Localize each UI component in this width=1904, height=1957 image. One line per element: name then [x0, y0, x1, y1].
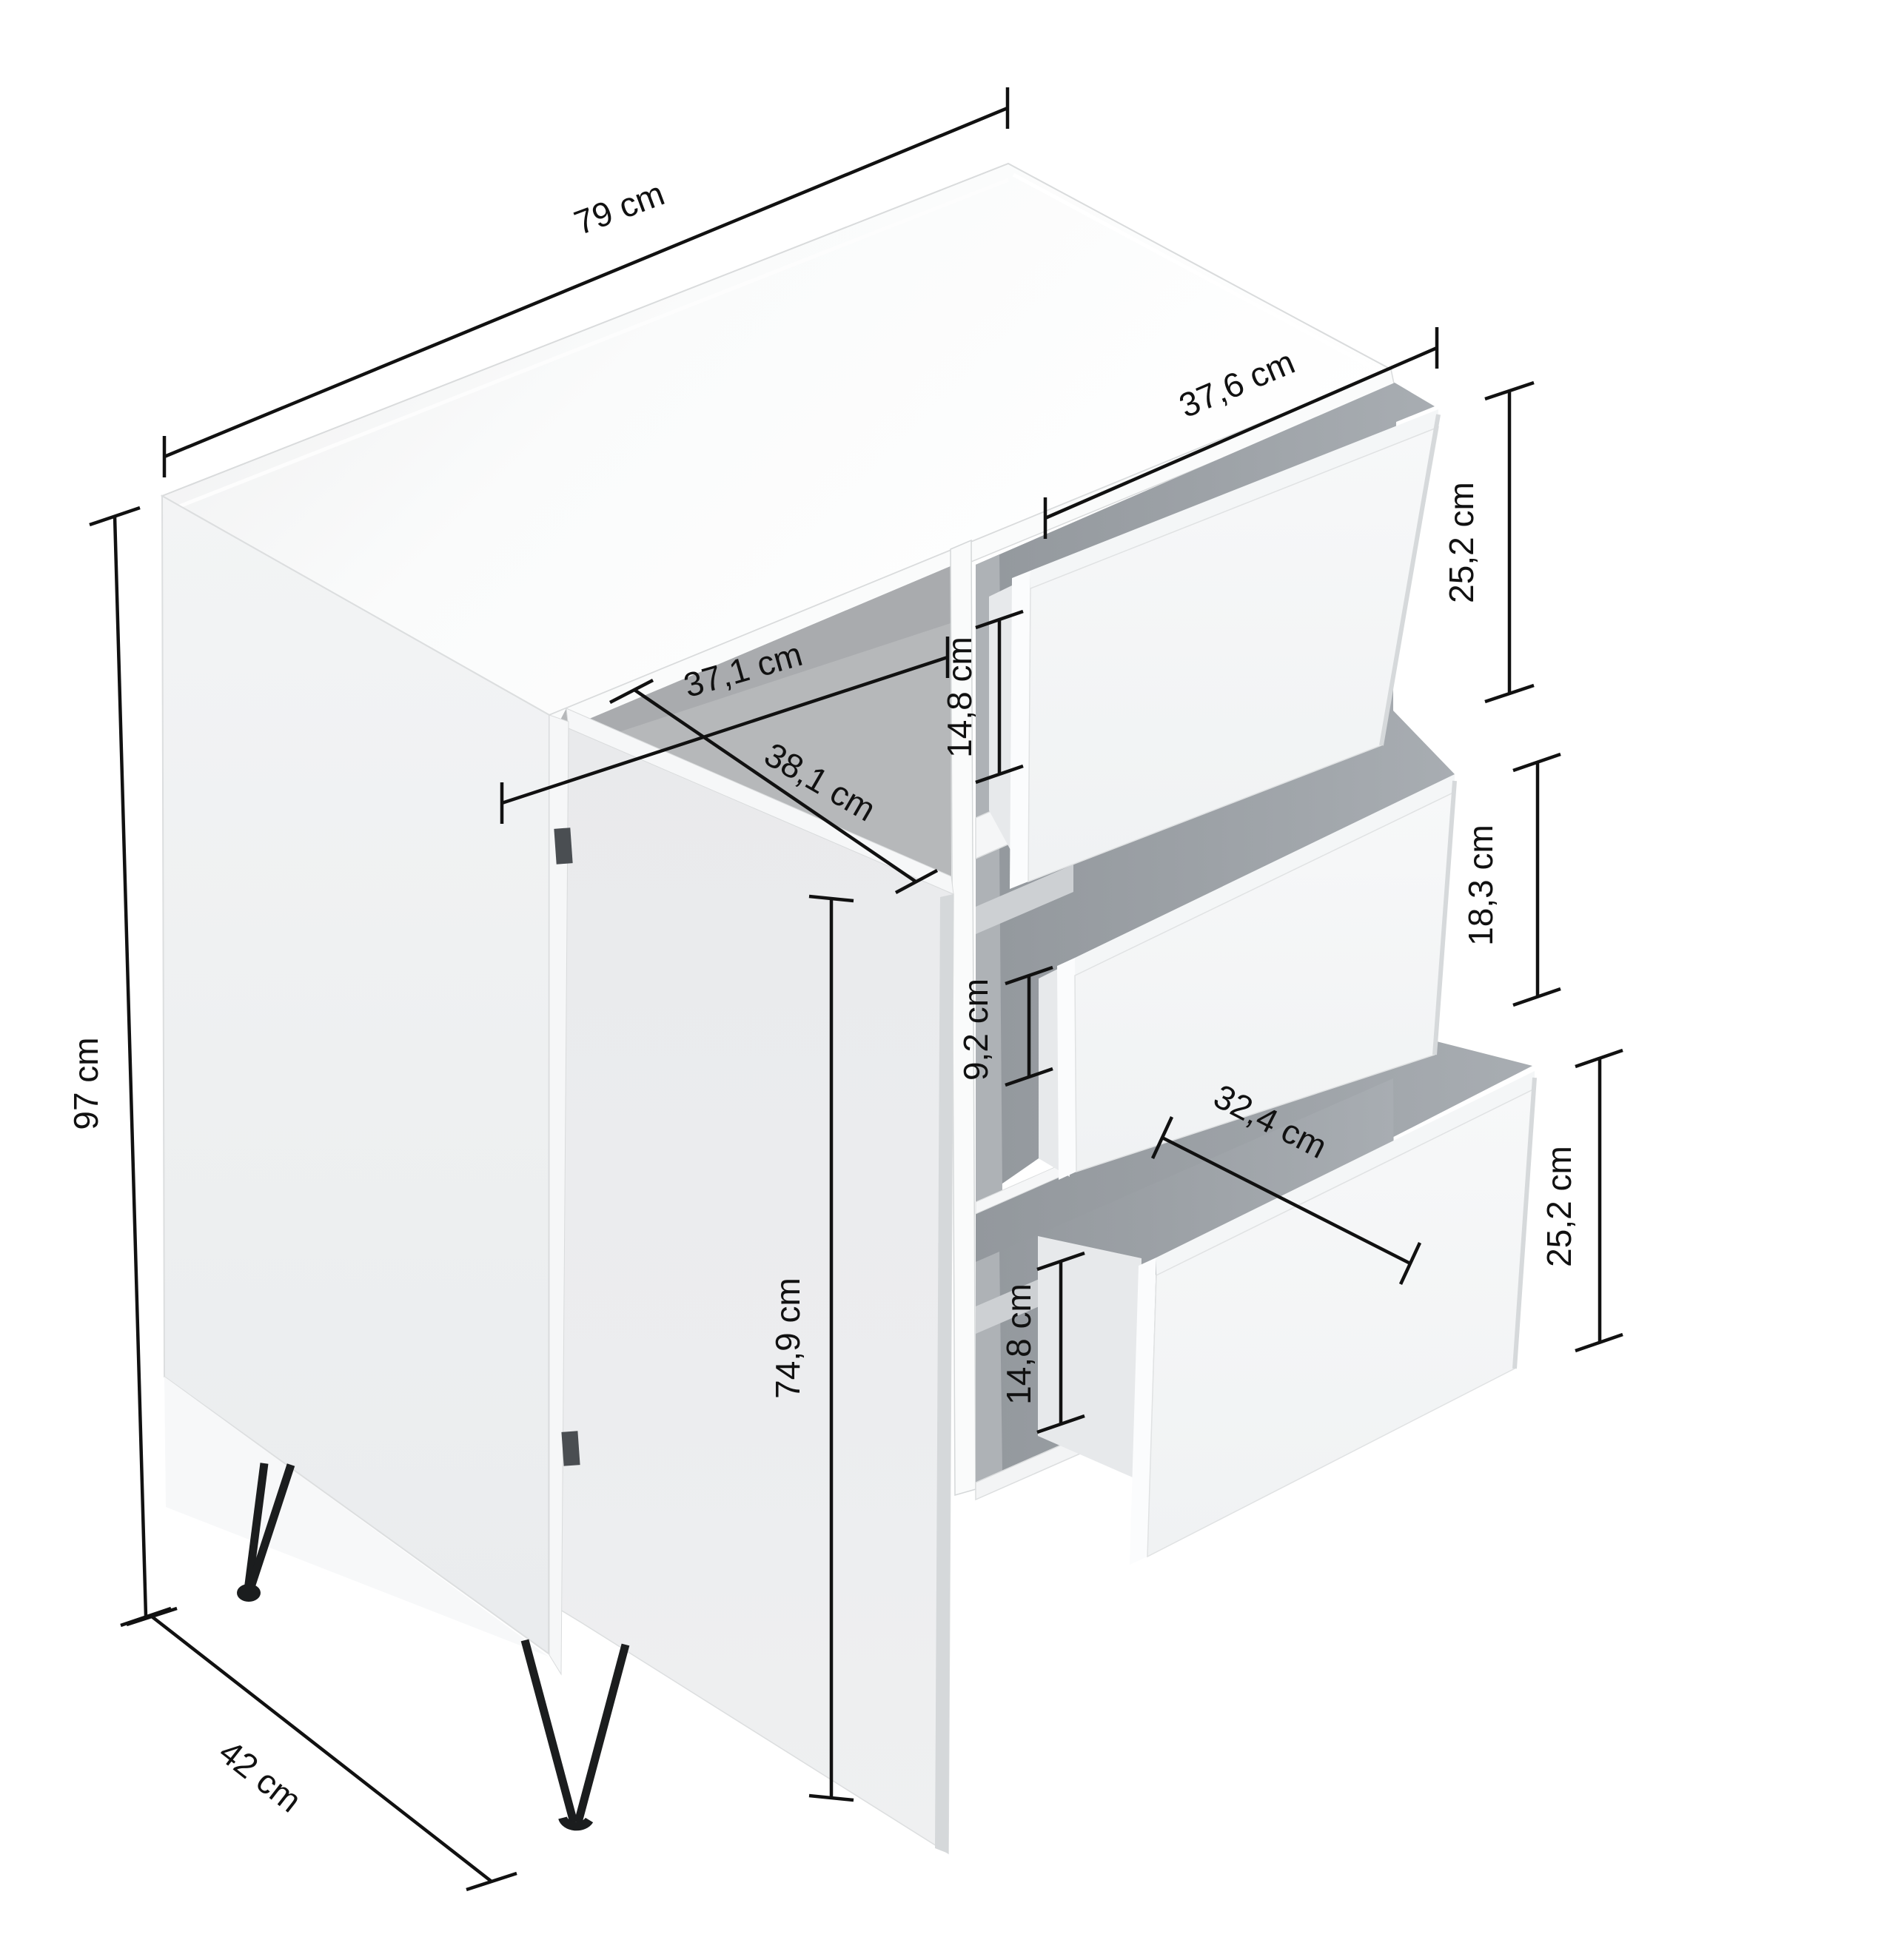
svg-text:25,2 cm: 25,2 cm	[1540, 1146, 1578, 1267]
svg-text:14,8 cm: 14,8 cm	[999, 1283, 1038, 1405]
svg-text:25,2 cm: 25,2 cm	[1442, 482, 1481, 603]
svg-text:18,3 cm: 18,3 cm	[1461, 825, 1500, 946]
svg-text:74,9 cm: 74,9 cm	[768, 1278, 807, 1399]
svg-text:14,8 cm: 14,8 cm	[940, 637, 979, 758]
svg-text:97 cm: 97 cm	[67, 1037, 105, 1129]
svg-text:9,2 cm: 9,2 cm	[956, 978, 995, 1081]
